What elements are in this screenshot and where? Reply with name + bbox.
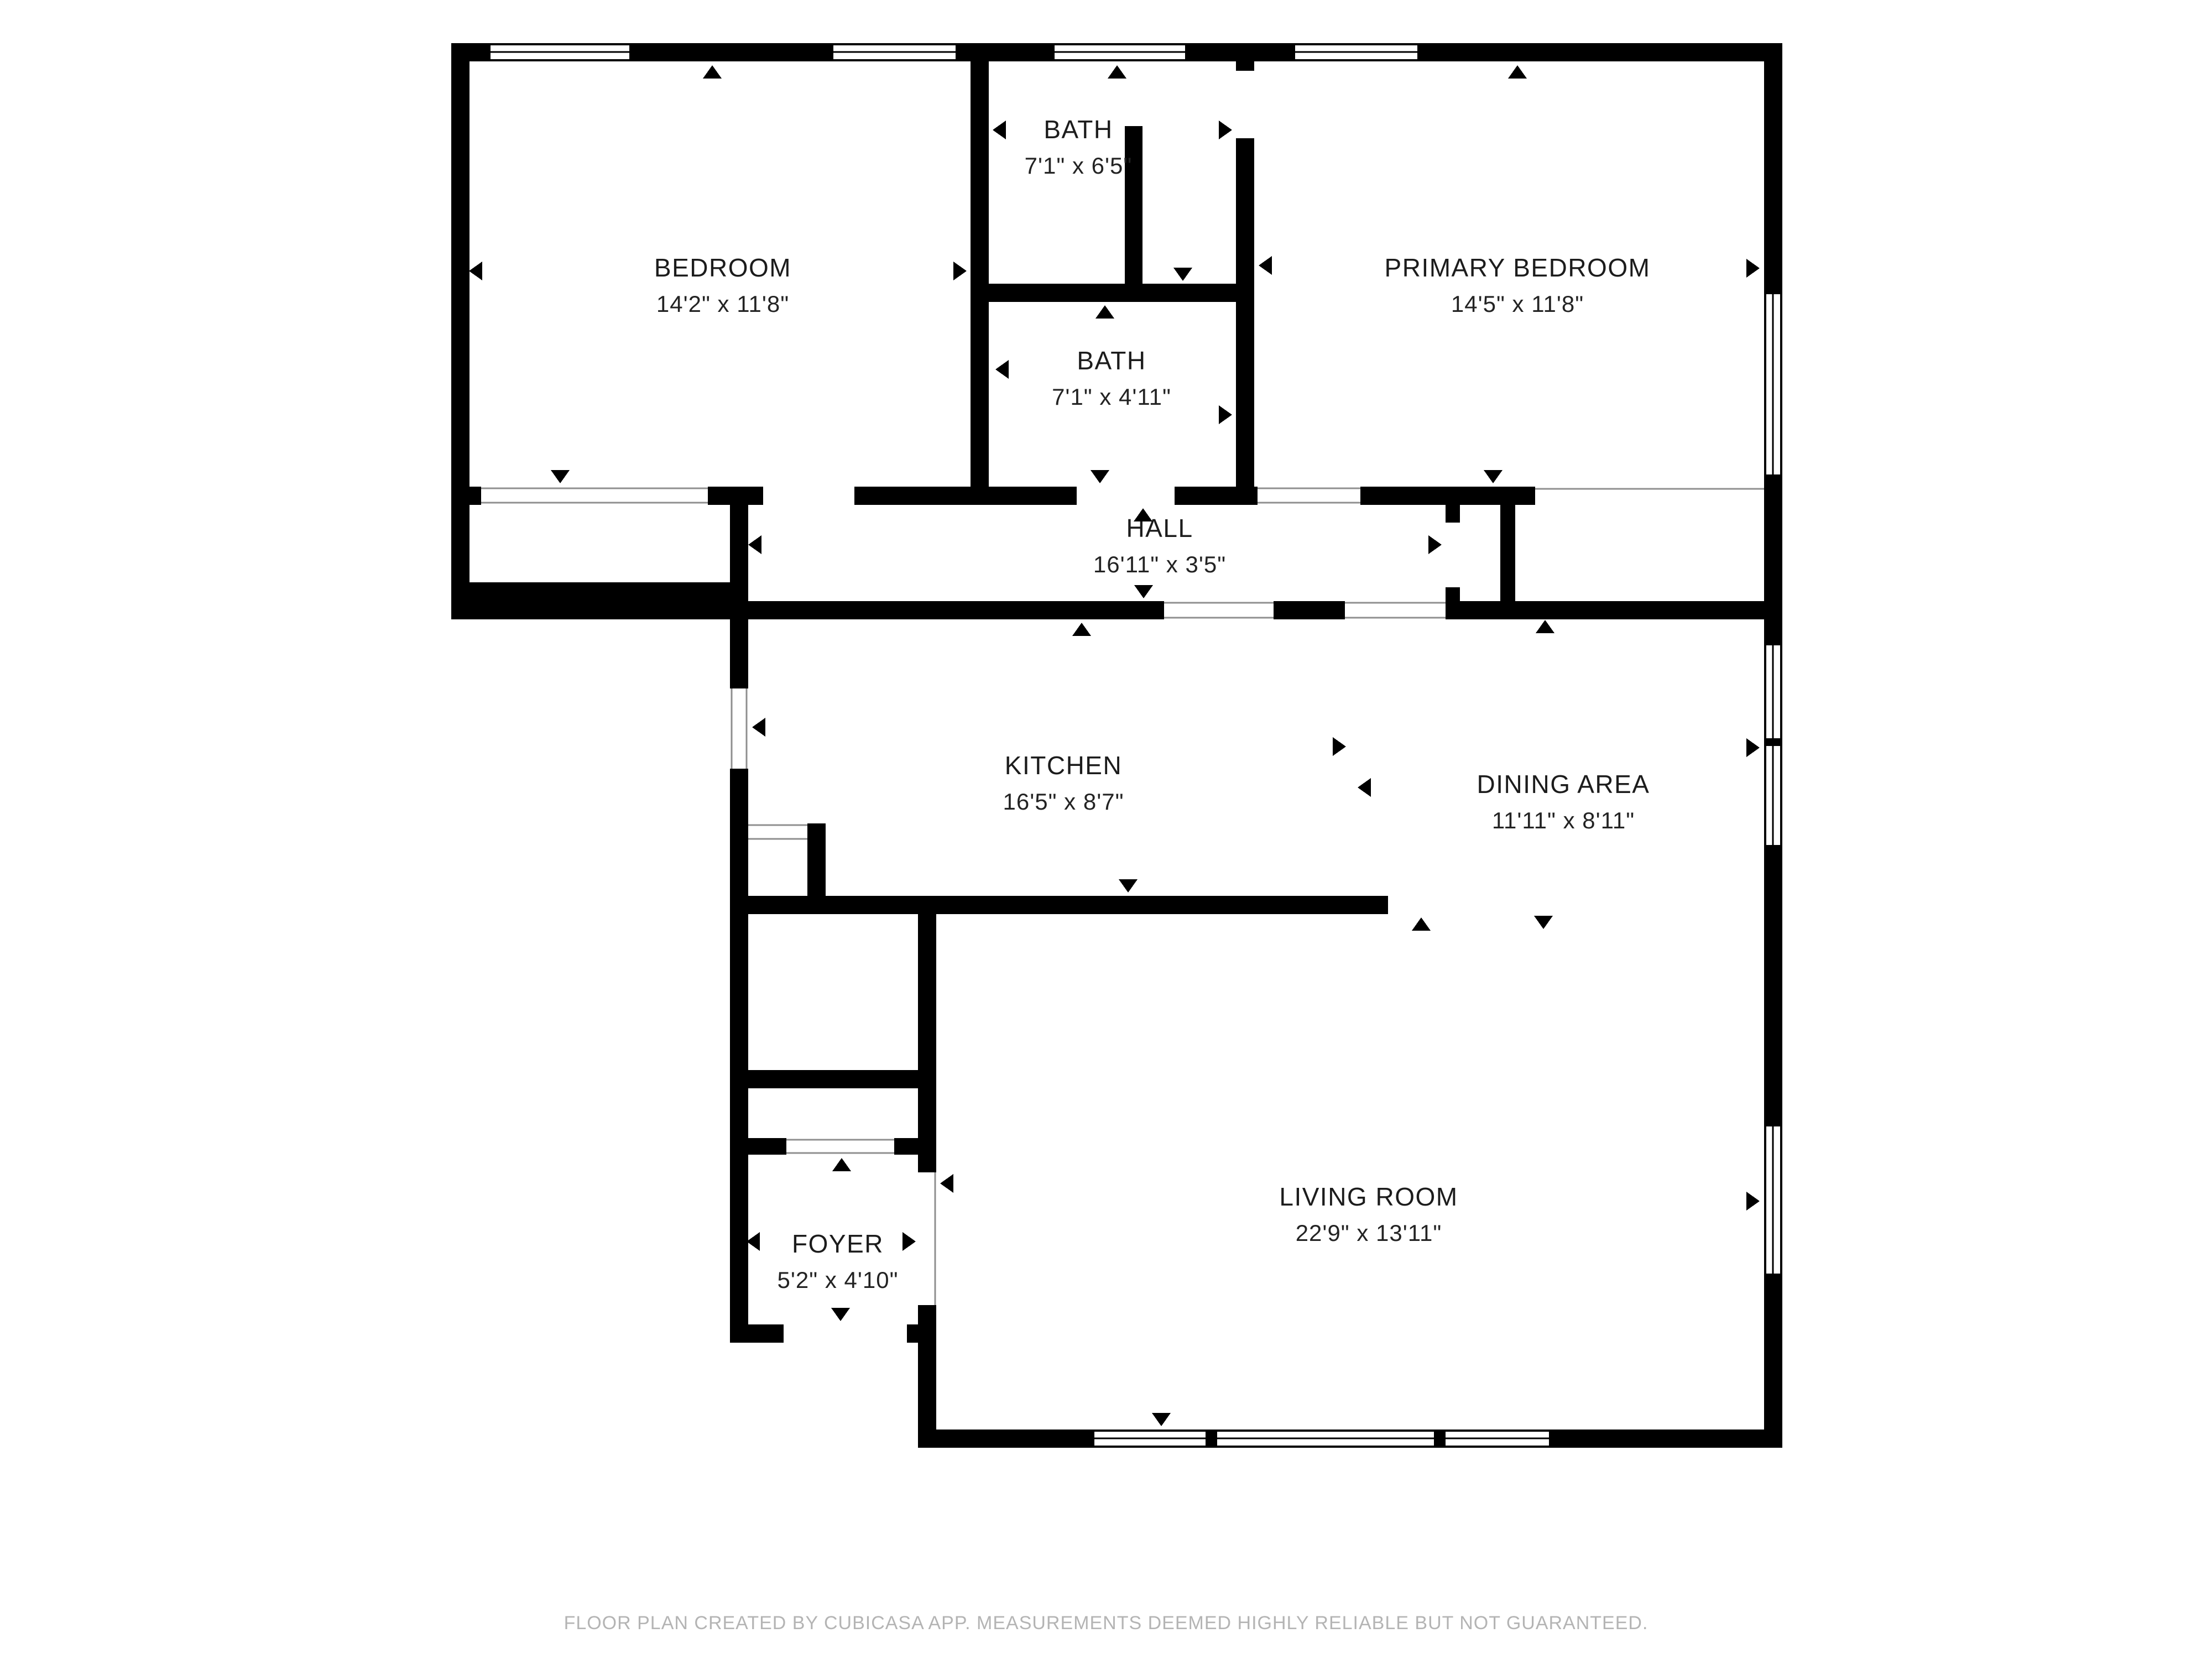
room-dimensions-primary-bedroom: 14'5" x 11'8" [1451,291,1584,317]
room-label-bath-top: BATH [1044,115,1113,144]
window [1294,44,1418,60]
window [1093,1430,1550,1448]
wall [630,43,832,61]
wall [1550,1430,1782,1448]
measure-arrow-down [1134,585,1153,598]
measure-arrow-down [551,470,570,483]
window [1764,644,1782,846]
measure-arrow-down [831,1308,850,1321]
room-label-dining-area: DINING AREA [1477,770,1650,799]
room-label-bedroom: BEDROOM [654,253,791,282]
measure-arrow-right [1333,737,1346,756]
wall [730,1324,784,1343]
wall [1236,61,1254,71]
wall [451,61,469,618]
measure-arrow-left [747,1232,760,1251]
window [489,44,630,60]
measure-arrow-right [1746,738,1760,757]
room-label-kitchen: KITCHEN [1005,751,1122,780]
wall [744,601,1164,619]
wall [1764,61,1782,293]
window [1765,293,1781,476]
measure-arrow-right [953,262,967,280]
room-labels: BEDROOM14'2" x 11'8"BATH7'1" x 6'5"PRIMA… [469,65,1760,1426]
wall [1446,601,1782,619]
measure-arrow-down [1173,268,1192,281]
wall [1500,505,1515,601]
measure-arrow-right [902,1232,916,1251]
floor-plan-drawing: BEDROOM14'2" x 11'8"BATH7'1" x 6'5"PRIMA… [0,0,2212,1659]
floor-plan-page: BEDROOM14'2" x 11'8"BATH7'1" x 6'5"PRIMA… [0,0,2212,1659]
measure-arrow-right [1219,121,1232,139]
footer-disclaimer: FLOOR PLAN CREATED BY CUBICASA APP. MEAS… [0,1613,2212,1634]
measure-arrow-up [1095,305,1114,319]
measure-arrow-up [1536,620,1554,633]
room-dimensions-living-room: 22'9" x 13'11" [1296,1220,1442,1246]
wall [854,487,1077,505]
wall [918,896,936,1172]
measure-arrow-left [469,262,482,280]
room-label-primary-bedroom: PRIMARY BEDROOM [1385,253,1651,282]
measure-arrow-right [1746,1192,1760,1211]
wall [1236,138,1254,487]
measure-arrow-left [940,1174,953,1193]
measure-arrow-up [1412,917,1431,931]
wall [918,1430,1093,1448]
wall [451,487,481,505]
wall [971,61,989,487]
wall [1360,487,1535,505]
room-label-bath-mid: BATH [1077,346,1146,375]
measure-arrow-left [1259,256,1272,275]
wall [918,1305,936,1448]
measure-arrow-left [752,718,765,737]
measure-arrow-left [748,535,761,554]
wall [451,582,744,619]
measure-arrow-left [995,360,1009,379]
measure-arrow-left [993,121,1006,139]
wall [730,769,748,1343]
room-label-foyer: FOYER [792,1229,884,1258]
measure-arrow-down [1119,879,1138,893]
window [1053,44,1186,60]
wall [1764,846,1782,1125]
room-dimensions-dining-area: 11'11" x 8'11" [1492,807,1635,833]
room-dimensions-bath-mid: 7'1" x 4'11" [1052,384,1171,410]
wall [1274,601,1345,619]
wall [730,1070,936,1088]
measure-arrow-up [1072,623,1091,636]
measure-arrow-up [1508,65,1527,79]
wall [957,43,1053,61]
measure-arrow-right [1428,535,1442,554]
measure-arrow-down [1534,916,1553,929]
measure-arrow-down [1484,470,1503,483]
wall [1418,43,1782,61]
room-dimensions-kitchen: 16'5" x 8'7" [1003,789,1124,815]
measure-arrow-down [1091,470,1109,483]
wall [730,487,748,688]
measure-arrow-up [832,1158,851,1171]
measure-arrow-right [1219,405,1232,424]
room-dimensions-bedroom: 14'2" x 11'8" [656,291,789,317]
wall [1446,587,1460,601]
wall [807,823,826,896]
wall [1446,505,1460,523]
measure-arrow-up [1108,65,1126,79]
wall [1186,43,1294,61]
measure-arrow-down [1152,1413,1171,1426]
room-label-living-room: LIVING ROOM [1279,1182,1458,1211]
window [1765,1125,1781,1275]
wall [1764,1275,1782,1448]
room-dimensions-bath-top: 7'1" x 6'5" [1025,153,1133,179]
room-dimensions-foyer: 5'2" x 4'10" [778,1267,899,1293]
wall [730,1138,786,1155]
measure-arrow-right [1746,259,1760,278]
wall [989,284,1236,302]
measure-arrow-up [703,65,722,79]
room-dimensions-hall: 16'11" x 3'5" [1093,551,1226,577]
wall [451,43,489,61]
wall [730,896,1388,914]
wall [1175,487,1258,505]
window [832,44,957,60]
measure-arrow-left [1358,778,1371,797]
